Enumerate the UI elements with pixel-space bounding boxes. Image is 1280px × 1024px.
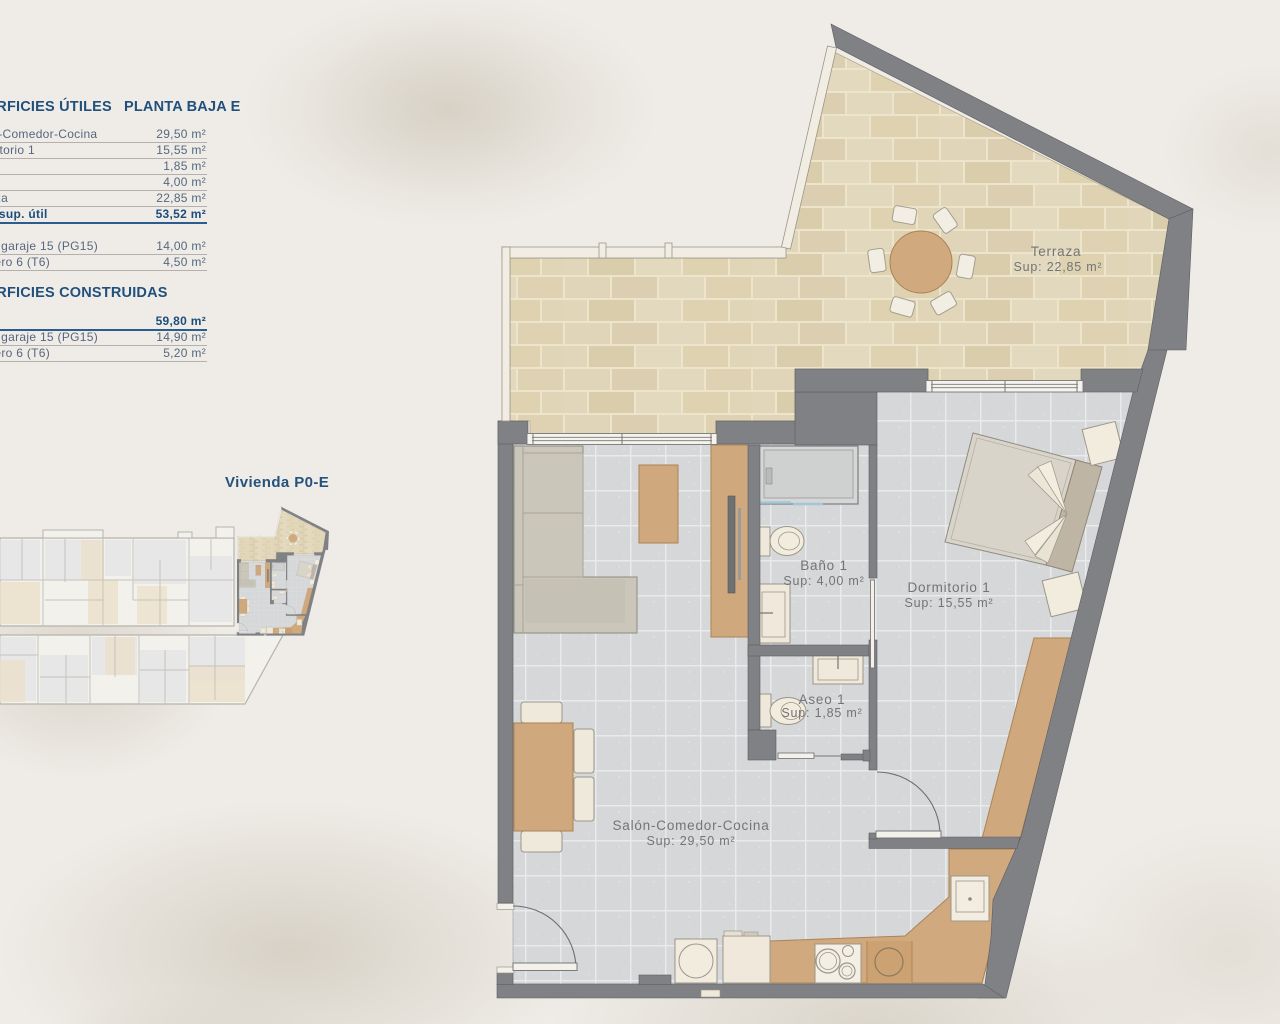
svg-text:Sup: 29,50 m²: Sup: 29,50 m² [647,834,736,848]
svg-text:Salón-Comedor-Cocina: Salón-Comedor-Cocina [612,818,769,833]
svg-text:Baño 1: Baño 1 [800,558,848,573]
svg-text:Aseo 1: Aseo 1 [799,692,846,707]
svg-text:Dormitorio 1: Dormitorio 1 [907,580,990,595]
svg-text:Sup: 1,85 m²: Sup: 1,85 m² [781,706,862,720]
svg-text:Sup: 22,85 m²: Sup: 22,85 m² [1014,260,1103,274]
svg-text:Terraza: Terraza [1031,244,1082,259]
svg-text:Sup: 15,55 m²: Sup: 15,55 m² [905,596,994,610]
svg-text:Sup: 4,00 m²: Sup: 4,00 m² [783,574,864,588]
